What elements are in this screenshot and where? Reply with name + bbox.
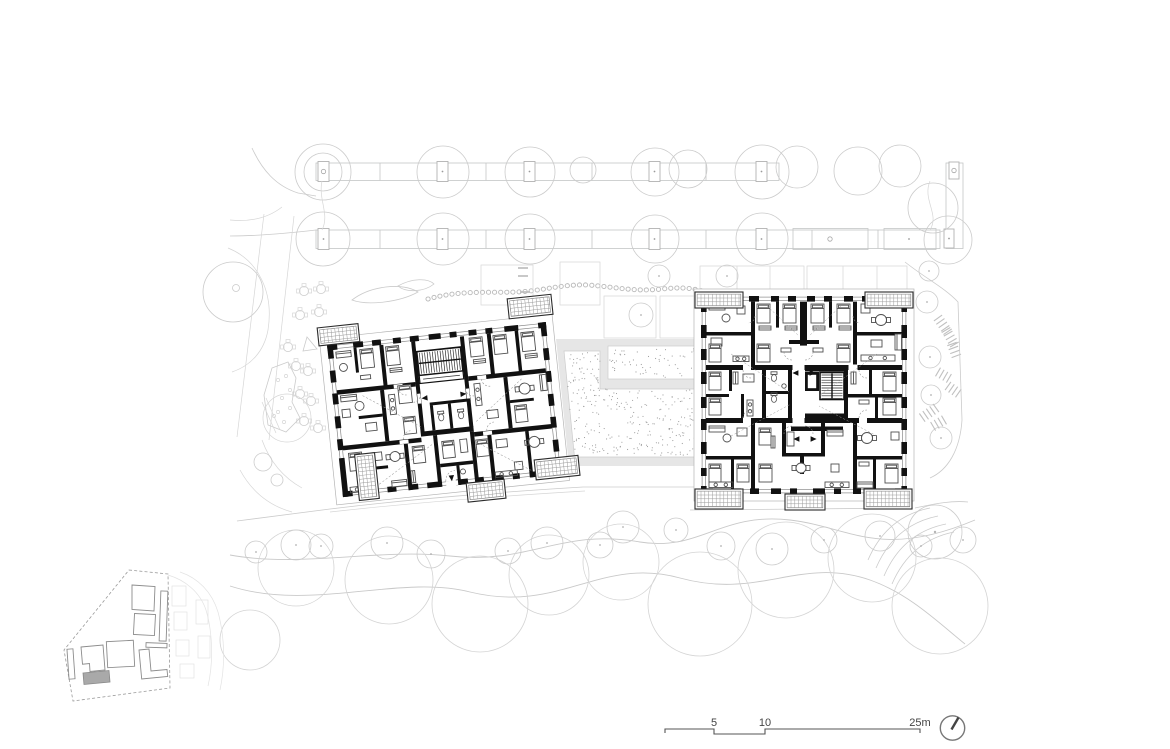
svg-text:5: 5	[711, 717, 717, 729]
svg-text:10: 10	[759, 717, 771, 729]
svg-text:25m: 25m	[909, 717, 930, 729]
